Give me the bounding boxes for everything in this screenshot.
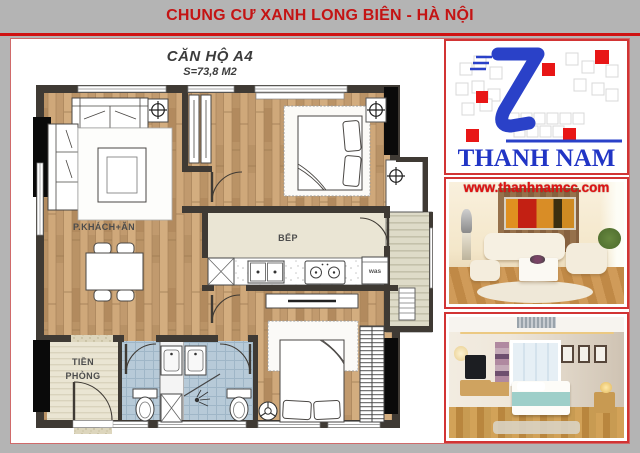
tv <box>465 355 486 379</box>
plant <box>598 228 621 249</box>
bedroom-photo <box>444 312 629 443</box>
hall-floor <box>47 341 118 423</box>
wall-art <box>504 197 576 230</box>
bookshelf <box>495 342 509 382</box>
kitchen-counter <box>208 258 386 285</box>
logo-box: THANH NAM <box>444 39 629 175</box>
label-hall-line2: PHÒNG <box>65 370 100 381</box>
plan-title: CĂN HỘ A4 <box>30 48 390 65</box>
flyer-page: CHUNG CƯ XANH LONG BIÊN - HÀ NỘI CĂN HỘ … <box>0 0 640 453</box>
window <box>510 340 561 386</box>
plan-header: CĂN HỘ A4 S=73,8 M2 <box>30 48 390 78</box>
plan-area-value: S=73,8 M2 <box>30 66 390 78</box>
door-mat <box>74 428 112 434</box>
website-text: www.thanhnamcc.com <box>446 180 627 195</box>
label-washer: was <box>368 268 382 275</box>
ac-ledge <box>386 160 423 212</box>
bed <box>512 381 570 415</box>
brand-name: THANH NAM <box>446 146 627 171</box>
thanh-nam-logo <box>446 41 627 145</box>
picture-frames <box>561 345 607 363</box>
living-room-photo: www.thanhnamcc.com <box>444 177 629 309</box>
statue <box>461 209 472 233</box>
label-kitchen: BẾP <box>278 233 298 243</box>
label-hall-line1: TIỀN <box>72 357 94 367</box>
label-living-dining: P.KHÁCH+ĂN <box>73 222 135 232</box>
ceiling-vent <box>517 317 556 328</box>
sofa <box>484 233 565 260</box>
